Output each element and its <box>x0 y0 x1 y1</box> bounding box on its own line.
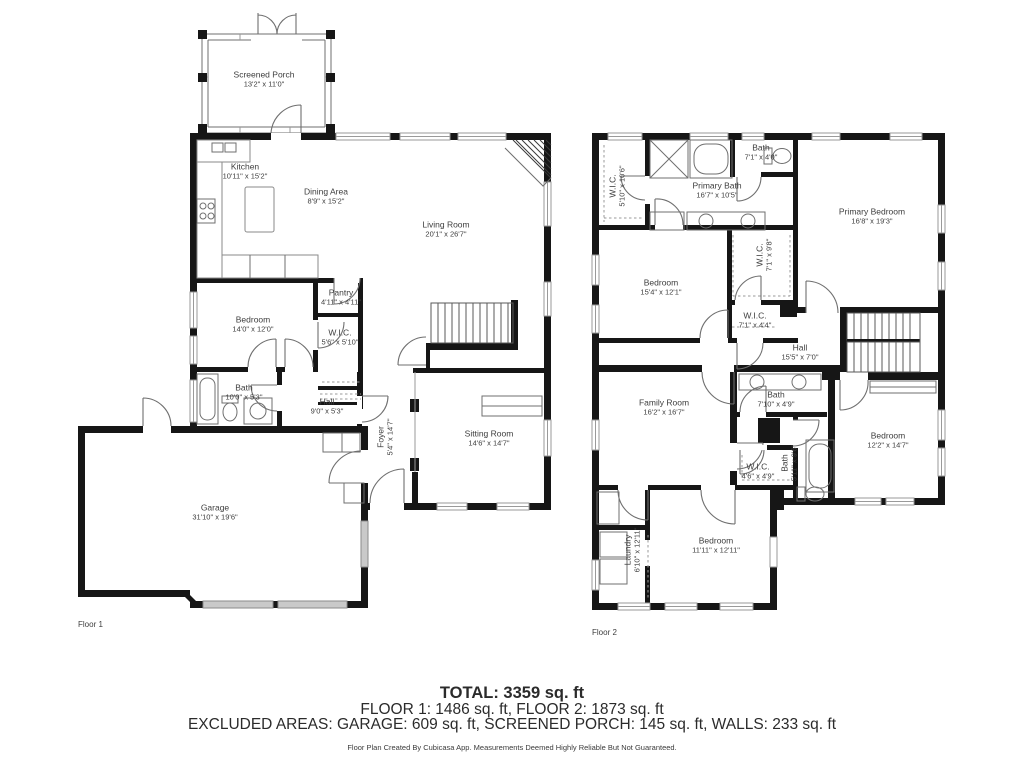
room-label-living-room: Living Room20'1" x 26'7" <box>422 220 469 239</box>
room-label-family-room: Family Room16'2" x 16'7" <box>639 398 689 417</box>
room-label-laundry: Laundry6'10" x 12'11" <box>623 528 642 573</box>
summary-disclaimer: Floor Plan Created By Cubicasa App. Meas… <box>0 743 1024 752</box>
room-label-sitting-room: Sitting Room14'6" x 14'7" <box>465 429 514 448</box>
room-label-wic-98: W.I.C.7'1" x 9'8" <box>755 239 774 272</box>
floor1-plan <box>78 13 551 608</box>
area-summary: TOTAL: 3359 sq. ft FLOOR 1: 1486 sq. ft,… <box>0 684 1024 752</box>
room-label-hall-f2: Hall15'5" x 7'0" <box>782 343 819 362</box>
room-label-pantry: Pantry4'11" x 4'11" <box>321 288 361 307</box>
room-label-bath-top: Bath7'1" x 4'0" <box>745 143 778 162</box>
floor1-label: Floor 1 <box>78 620 103 629</box>
room-label-bedroom-1111: Bedroom11'11" x 12'11" <box>692 536 740 555</box>
kitchen-island <box>245 187 274 232</box>
room-label-bath-f1: Bath10'0" x 5'3" <box>226 383 263 402</box>
room-label-garage: Garage31'10" x 19'6" <box>192 503 237 522</box>
room-label-bath-double: Bath7'10" x 4'9" <box>758 390 795 409</box>
floor2-plan <box>592 133 945 610</box>
room-label-primary-bath: Primary Bath16'7" x 10'5" <box>692 181 741 200</box>
floor1-stairs <box>431 303 513 343</box>
floor-plan-drawing <box>0 0 1024 768</box>
room-label-dining-area: Dining Area8'9" x 15'2" <box>304 187 348 206</box>
floor-plan-page: Screened Porch13'2" x 11'0" Kitchen10'11… <box>0 0 1024 768</box>
summary-floors: FLOOR 1: 1486 sq. ft, FLOOR 2: 1873 sq. … <box>0 702 1024 717</box>
room-label-foyer: Foyer5'4" x 14'7" <box>376 419 395 456</box>
room-label-bedroom-122: Bedroom12'2" x 14'7" <box>867 431 908 450</box>
room-label-bedroom-f1: Bedroom14'0" x 12'0" <box>232 315 273 334</box>
room-label-primary-bedroom: Primary Bedroom16'8" x 19'3" <box>839 207 905 226</box>
room-label-wic-46: W.I.C.4'6" x 4'9" <box>742 462 775 481</box>
room-label-wic-f1: W.I.C.5'6" x 5'10" <box>322 328 359 347</box>
room-label-hall-f1: Hall9'0" x 5'3" <box>311 397 344 416</box>
room-label-wic-primary: W.I.C.5'10" x 10'6" <box>608 165 627 206</box>
summary-total: TOTAL: 3359 sq. ft <box>0 684 1024 702</box>
summary-excluded: EXCLUDED AREAS: GARAGE: 609 sq. ft, SCRE… <box>0 717 1024 732</box>
floor2-stairs <box>847 313 920 372</box>
room-label-kitchen: Kitchen10'11" x 15'2" <box>223 162 268 181</box>
room-label-screened-porch: Screened Porch13'2" x 11'0" <box>234 70 295 89</box>
floor2-label: Floor 2 <box>592 628 617 637</box>
room-label-bath-vert: Bath5'11" x 9'6" <box>780 445 799 481</box>
room-label-bedroom-154: Bedroom15'4" x 12'1" <box>640 278 681 297</box>
room-label-wic-44: W.I.C.7'1" x 4'4" <box>739 311 772 330</box>
